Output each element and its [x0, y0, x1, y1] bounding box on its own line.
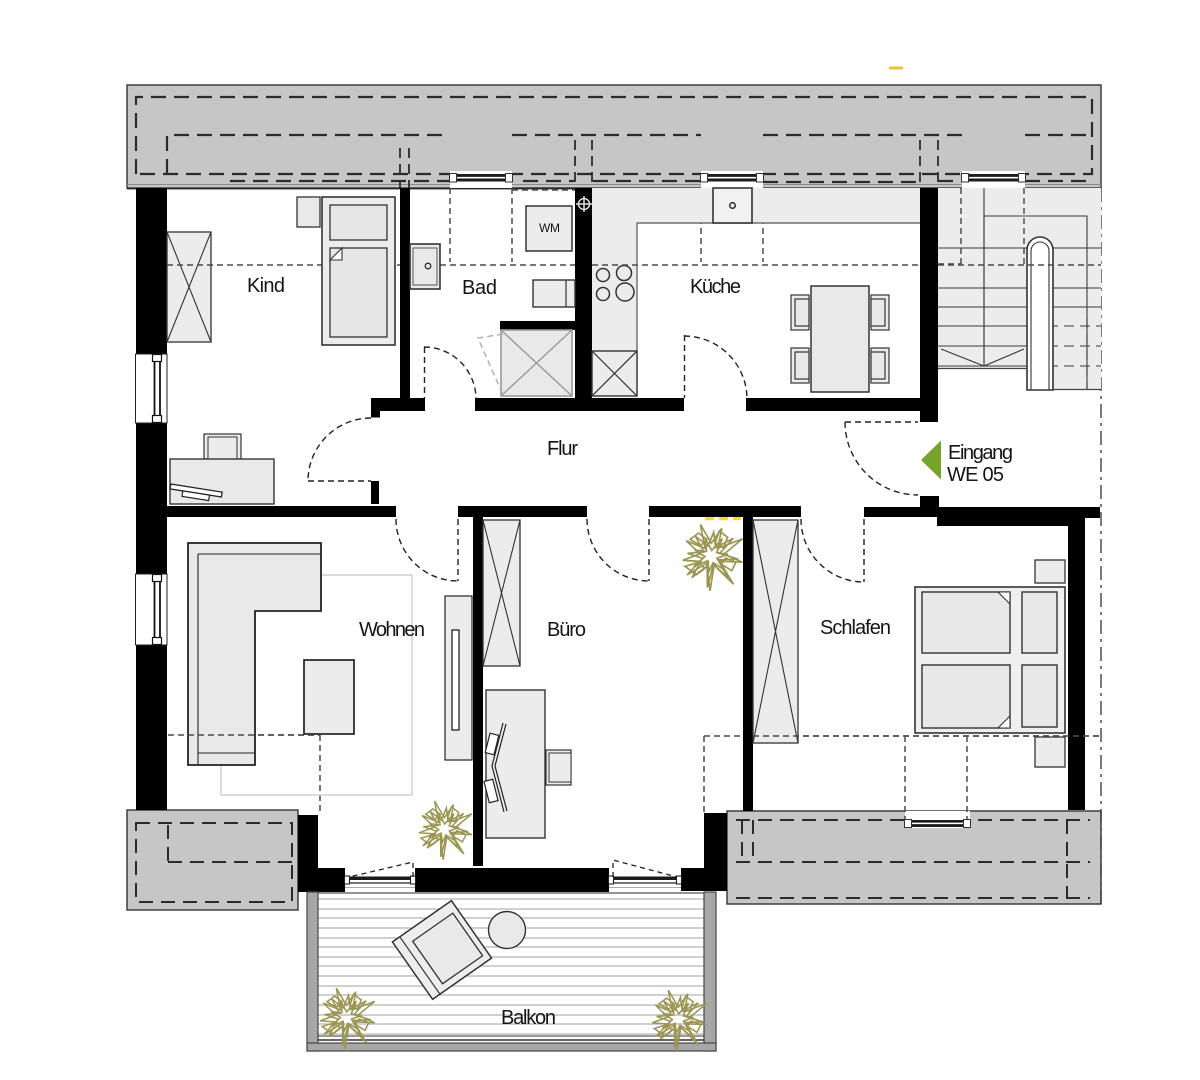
svg-text:Bad: Bad: [462, 277, 497, 299]
svg-text:Kind: Kind: [247, 275, 285, 297]
svg-text:Schlafen: Schlafen: [820, 617, 891, 639]
svg-text:Wohnen: Wohnen: [359, 619, 425, 641]
svg-text:WE 05: WE 05: [947, 464, 1004, 486]
svg-text:Büro: Büro: [547, 619, 586, 641]
svg-text:Flur: Flur: [547, 438, 578, 460]
svg-text:WM: WM: [539, 221, 560, 235]
svg-text:Küche: Küche: [690, 276, 741, 298]
svg-text:Balkon: Balkon: [501, 1007, 556, 1029]
svg-text:Eingang: Eingang: [948, 442, 1013, 464]
